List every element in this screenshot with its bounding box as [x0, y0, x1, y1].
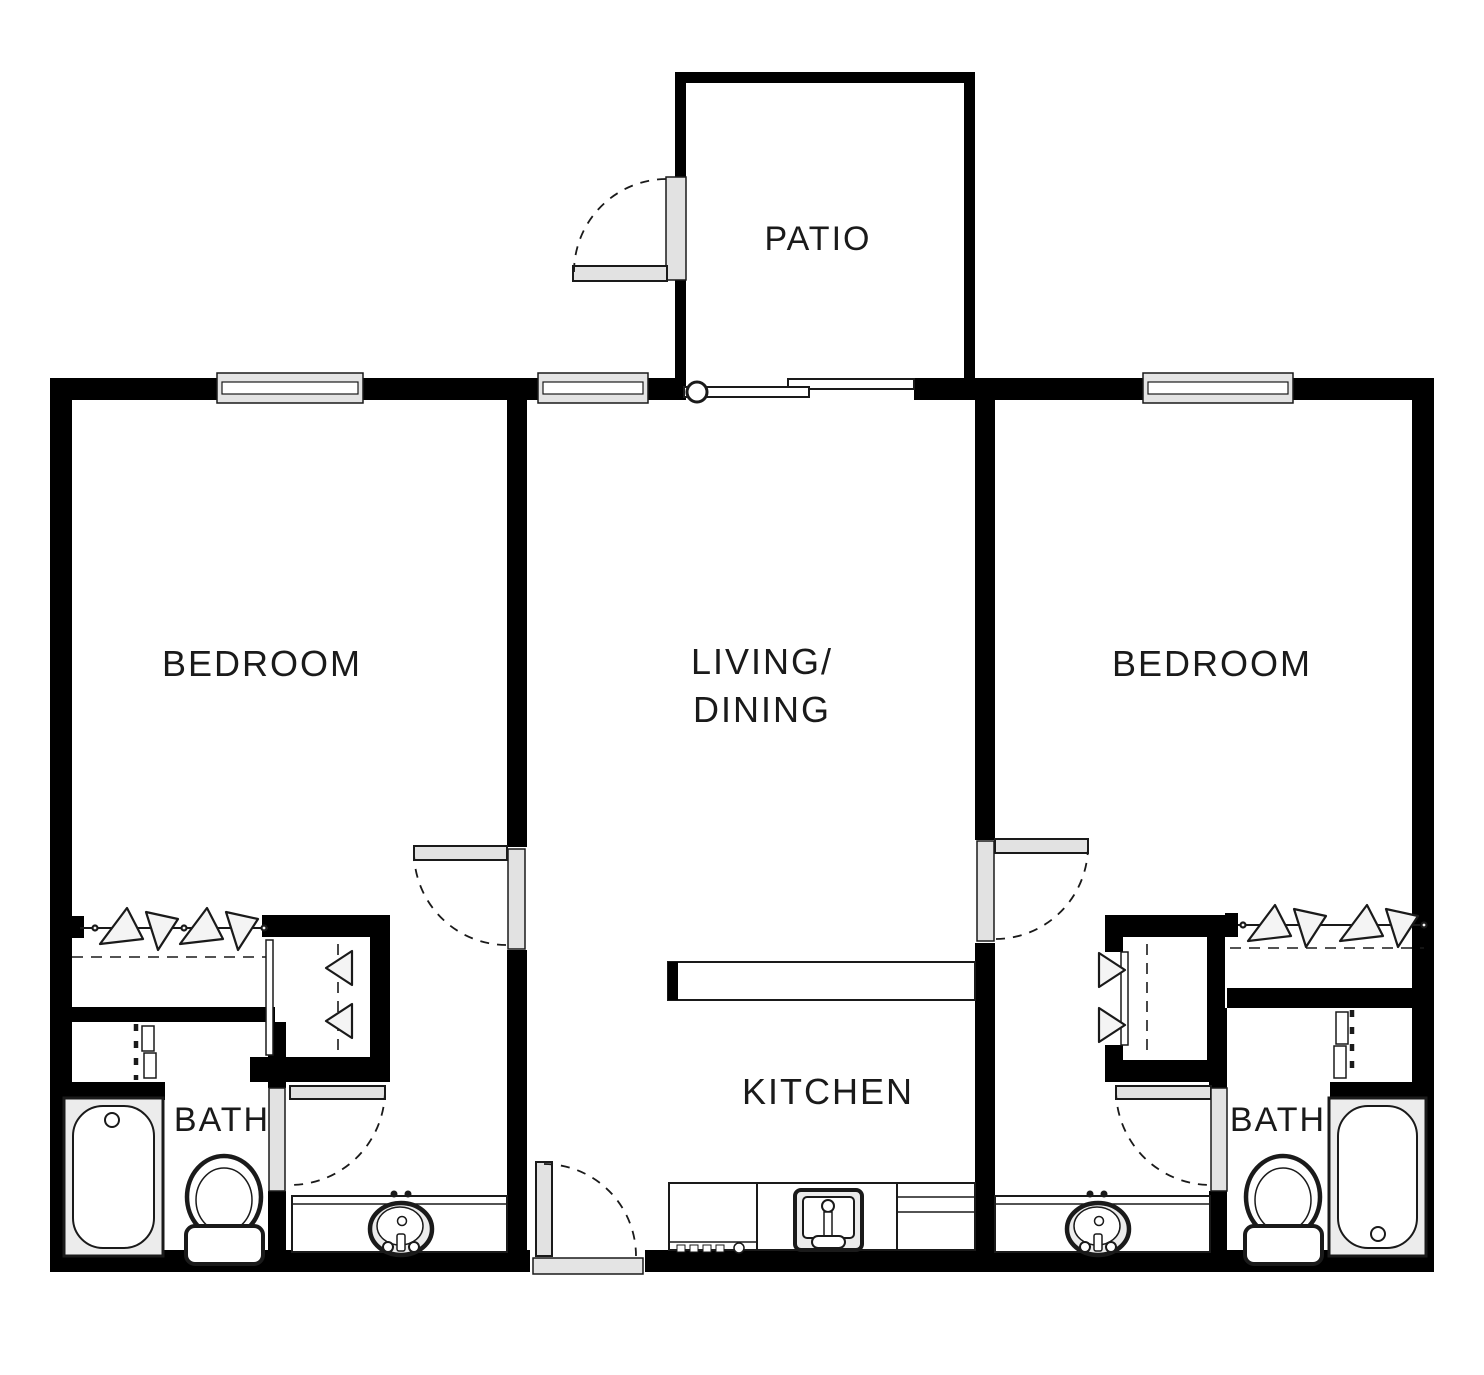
window — [217, 373, 363, 403]
patio-wall — [675, 72, 686, 177]
floor-plan-page: PATIO BEDROOM LIVING/ DINING BEDROOM KIT… — [0, 0, 1484, 1375]
wall-segment — [507, 400, 527, 847]
kitchen-counter-bar — [668, 962, 975, 1000]
window — [538, 373, 648, 403]
door-swing-arc — [574, 179, 667, 272]
tub-drain-icon — [105, 1113, 119, 1127]
faucet-handle-icon — [1101, 1191, 1108, 1198]
wall-segment — [1105, 915, 1123, 952]
wall-segment — [914, 378, 1143, 400]
sliding-door — [684, 379, 914, 402]
wall-segment — [975, 943, 995, 1250]
wall-segment — [72, 1007, 275, 1022]
reach-in-closet-right — [1099, 944, 1147, 1054]
wall-segment — [1227, 988, 1428, 1008]
closet-left — [72, 908, 272, 957]
faucet-icon — [822, 1200, 834, 1212]
bath-left-door — [269, 1086, 385, 1191]
floor-plan-drawing: PATIO BEDROOM LIVING/ DINING BEDROOM KIT… — [0, 0, 1484, 1375]
faucet-icon — [397, 1234, 405, 1251]
patio-wall — [964, 72, 975, 400]
door-swing-arc — [290, 1090, 385, 1185]
sink-drain-icon — [398, 1217, 407, 1226]
patio-door — [573, 177, 686, 281]
room-label-kitchen: KITCHEN — [742, 1071, 914, 1112]
door-swing-arc — [1116, 1090, 1211, 1185]
faucet-handle-icon — [405, 1191, 412, 1198]
kitchen-appliances — [669, 1183, 975, 1253]
kitchen-sink — [795, 1190, 862, 1250]
linen-closet-right — [1334, 1010, 1352, 1078]
wall-segment — [50, 378, 217, 400]
entry-threshold — [533, 1258, 643, 1274]
bathtub-left — [64, 1098, 163, 1256]
faucet-icon — [1094, 1234, 1102, 1251]
faucet-handle-icon — [391, 1191, 398, 1198]
room-labels: PATIO BEDROOM LIVING/ DINING BEDROOM KIT… — [162, 220, 1326, 1139]
wall-segment — [975, 400, 995, 840]
door-swing-arc — [544, 1164, 636, 1256]
wall-segment — [1209, 1191, 1227, 1250]
room-label-living-line2: DINING — [693, 689, 831, 730]
linen-closet-left — [136, 1024, 156, 1080]
bathtub-right — [1329, 1098, 1426, 1256]
wall-segment — [1225, 913, 1238, 937]
wall-segment — [1209, 1008, 1227, 1088]
sliding-door-handle-icon — [687, 382, 707, 402]
bedroom-right-door — [977, 839, 1088, 941]
hanger-icon — [326, 951, 352, 985]
toilet-left — [186, 1156, 263, 1264]
sink-drain-icon — [1095, 1217, 1104, 1226]
entry-door — [533, 1162, 643, 1274]
patio-wall — [675, 72, 975, 83]
room-label-bath-left: BATH — [174, 1101, 270, 1139]
room-label-patio: PATIO — [765, 220, 872, 258]
wall-segment — [370, 915, 390, 1082]
tub-drain-icon — [1371, 1227, 1385, 1241]
room-label-bath-right: BATH — [1230, 1101, 1326, 1139]
bath-right-door — [1116, 1086, 1227, 1191]
vanity-right — [995, 1191, 1210, 1256]
patio-wall — [675, 280, 686, 392]
bedroom-left-door — [414, 846, 525, 949]
wall-segment — [507, 950, 527, 1250]
window — [1143, 373, 1293, 403]
room-label-bedroom-left: BEDROOM — [162, 643, 362, 684]
vanity-left — [292, 1191, 507, 1256]
toilet-right — [1245, 1156, 1322, 1264]
closet-right — [1230, 905, 1427, 948]
wall-segment — [363, 378, 538, 400]
room-label-living-line1: LIVING/ — [691, 641, 833, 682]
wall-segment — [1105, 1060, 1225, 1082]
door-swing-arc — [995, 846, 1088, 939]
hanger-icon — [326, 1004, 352, 1038]
faucet-handle-icon — [1087, 1191, 1094, 1198]
wall-segment — [268, 1191, 286, 1250]
room-label-bedroom-right: BEDROOM — [1112, 643, 1312, 684]
door-swing-arc — [414, 852, 507, 945]
